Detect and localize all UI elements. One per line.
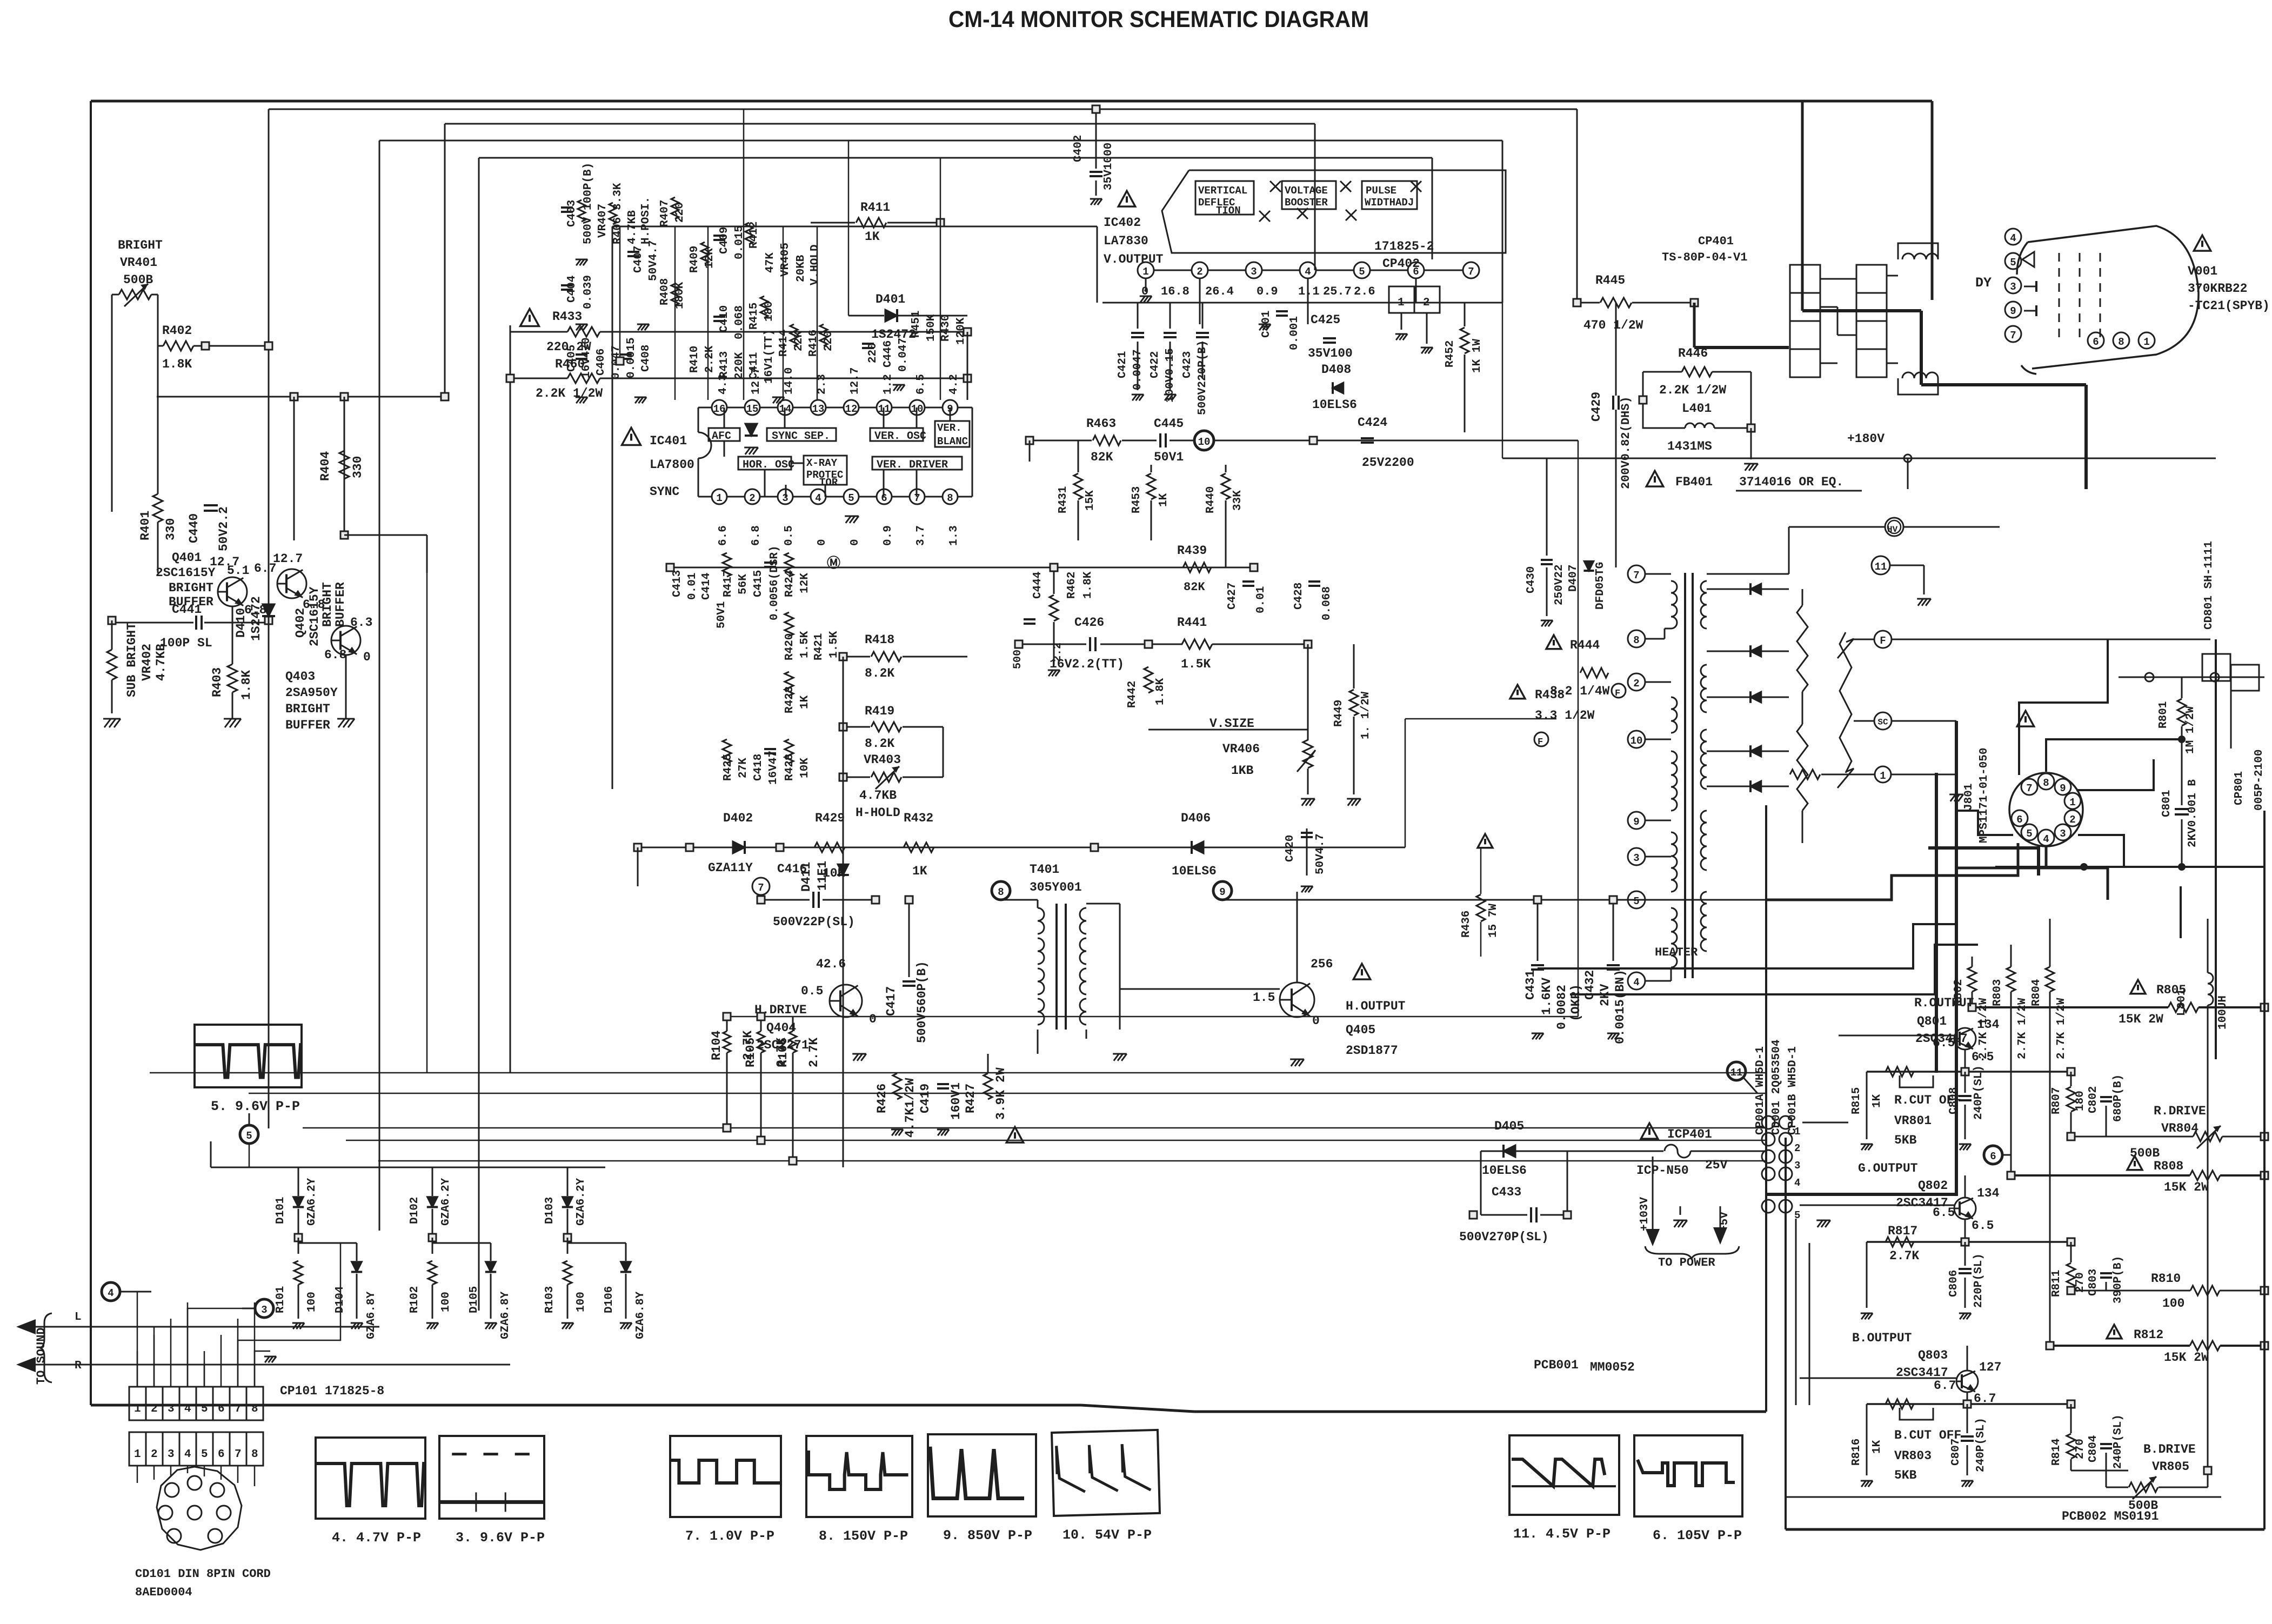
svg-text:8: 8 bbox=[251, 1403, 258, 1415]
svg-text:VR403: VR403 bbox=[864, 753, 901, 767]
svg-text:R103: R103 bbox=[544, 1286, 556, 1313]
svg-text:7: 7 bbox=[1633, 570, 1639, 582]
svg-text:C427: C427 bbox=[1226, 583, 1239, 610]
svg-text:R444: R444 bbox=[1570, 638, 1600, 652]
svg-text:15K 2W: 15K 2W bbox=[2119, 1012, 2163, 1026]
svg-text:0.01: 0.01 bbox=[686, 573, 699, 600]
svg-text:VR406: VR406 bbox=[1222, 742, 1260, 756]
svg-text:127: 127 bbox=[1979, 1360, 2001, 1374]
svg-text:1: 1 bbox=[2069, 797, 2075, 808]
svg-text:T401: T401 bbox=[1030, 863, 1059, 877]
svg-text:1: 1 bbox=[2143, 336, 2149, 348]
svg-text:VR402: VR402 bbox=[140, 644, 154, 681]
svg-text:1S2472: 1S2472 bbox=[871, 328, 916, 342]
svg-text:ICP401: ICP401 bbox=[1667, 1127, 1712, 1141]
svg-text:R413: R413 bbox=[718, 351, 731, 378]
svg-text:1.8K: 1.8K bbox=[162, 357, 192, 371]
svg-text:C430: C430 bbox=[1525, 566, 1538, 593]
svg-text:-TC21(SPYB): -TC21(SPYB) bbox=[2188, 299, 2270, 313]
svg-text:Q405: Q405 bbox=[1346, 1023, 1375, 1037]
svg-text:Q403: Q403 bbox=[285, 670, 315, 684]
svg-text:R104: R104 bbox=[710, 1031, 724, 1060]
svg-text:VR405: VR405 bbox=[779, 243, 792, 277]
svg-text:H-HOLD: H-HOLD bbox=[856, 806, 900, 820]
svg-text:220P(SL): 220P(SL) bbox=[1973, 1253, 1985, 1308]
svg-text:0.01: 0.01 bbox=[1255, 586, 1267, 613]
svg-text:1.3: 1.3 bbox=[948, 525, 960, 546]
svg-text:2: 2 bbox=[2069, 814, 2075, 826]
svg-text:1.5K: 1.5K bbox=[1181, 657, 1211, 671]
svg-text:0.001: 0.001 bbox=[1288, 316, 1301, 350]
svg-text:0.047: 0.047 bbox=[897, 338, 910, 372]
svg-text:20KB: 20KB bbox=[795, 255, 807, 282]
svg-text:D102: D102 bbox=[409, 1197, 421, 1224]
svg-text:R808: R808 bbox=[2154, 1159, 2183, 1173]
svg-text:200V0.82(DHS): 200V0.82(DHS) bbox=[1619, 396, 1633, 489]
svg-text:1.8K: 1.8K bbox=[239, 670, 253, 700]
svg-text:TION: TION bbox=[1216, 205, 1241, 217]
svg-text:R433: R433 bbox=[552, 310, 582, 324]
svg-text:C406: C406 bbox=[595, 349, 607, 376]
svg-text:R414: R414 bbox=[778, 330, 790, 357]
svg-text:3.3 1/2W: 3.3 1/2W bbox=[1535, 709, 1595, 723]
svg-text:25.7: 25.7 bbox=[1323, 285, 1352, 298]
svg-text:G.OUTPUT: G.OUTPUT bbox=[1858, 1161, 1918, 1175]
svg-text:220: 220 bbox=[823, 331, 835, 351]
svg-text:1.5: 1.5 bbox=[1253, 991, 1275, 1005]
svg-text:1M 1/2W: 1M 1/2W bbox=[2184, 706, 2197, 754]
svg-text:R436: R436 bbox=[1460, 911, 1473, 938]
svg-text:6.5: 6.5 bbox=[915, 374, 927, 395]
svg-text:9: 9 bbox=[2060, 783, 2066, 794]
svg-text:390P(B): 390P(B) bbox=[2112, 1256, 2124, 1304]
svg-text:4: 4 bbox=[184, 1448, 191, 1461]
svg-text:R445: R445 bbox=[1595, 273, 1625, 288]
svg-text:1K: 1K bbox=[1871, 1440, 1883, 1454]
svg-text:12.7: 12.7 bbox=[849, 367, 861, 395]
svg-text:R415: R415 bbox=[748, 303, 760, 330]
svg-text:134: 134 bbox=[1977, 1186, 2000, 1200]
svg-text:11: 11 bbox=[1730, 1067, 1743, 1079]
svg-text:L401: L401 bbox=[1682, 402, 1712, 416]
svg-text:R402: R402 bbox=[162, 324, 192, 338]
svg-text:C421: C421 bbox=[1117, 351, 1129, 378]
svg-text:VR407: VR407 bbox=[597, 204, 609, 238]
svg-text:GZA11Y: GZA11Y bbox=[708, 861, 753, 875]
svg-text:F: F bbox=[1615, 689, 1620, 699]
svg-text:C804: C804 bbox=[2087, 1435, 2100, 1462]
svg-text:R411: R411 bbox=[860, 201, 890, 215]
svg-text:7: 7 bbox=[1468, 266, 1474, 278]
svg-text:C801: C801 bbox=[2161, 790, 2173, 817]
svg-text:82K: 82K bbox=[1091, 450, 1113, 464]
svg-text:H.OUTPUT: H.OUTPUT bbox=[1346, 999, 1406, 1013]
svg-text:10: 10 bbox=[1631, 735, 1643, 747]
svg-text:171825-2: 171825-2 bbox=[1374, 239, 1434, 253]
svg-text:22K: 22K bbox=[793, 331, 805, 351]
svg-text:10K: 10K bbox=[823, 866, 845, 880]
svg-text:SYNC: SYNC bbox=[650, 485, 679, 499]
svg-text:35V100: 35V100 bbox=[1308, 346, 1353, 360]
svg-text:240P(SL): 240P(SL) bbox=[1975, 1418, 1987, 1472]
svg-text:2.2K 1/2W: 2.2K 1/2W bbox=[536, 386, 603, 400]
svg-text:7: 7 bbox=[758, 882, 764, 894]
svg-text:D408: D408 bbox=[1321, 363, 1351, 377]
svg-text:8: 8 bbox=[2118, 336, 2124, 348]
svg-text:8: 8 bbox=[998, 886, 1004, 898]
svg-text:+103V: +103V bbox=[1639, 1197, 1651, 1231]
svg-text:8: 8 bbox=[251, 1448, 258, 1461]
svg-text:R463: R463 bbox=[1086, 417, 1116, 431]
svg-text:R101: R101 bbox=[275, 1286, 287, 1313]
svg-text:VR805: VR805 bbox=[2152, 1460, 2189, 1474]
svg-text:V.SIZE: V.SIZE bbox=[1209, 717, 1254, 731]
svg-text:220: 220 bbox=[674, 202, 686, 223]
svg-text:50V2.2: 50V2.2 bbox=[217, 506, 231, 551]
svg-text:R106: R106 bbox=[776, 1038, 790, 1067]
svg-text:4: 4 bbox=[184, 1403, 191, 1415]
svg-text:CP801: CP801 bbox=[2233, 771, 2246, 805]
svg-text:5KB: 5KB bbox=[1894, 1468, 1917, 1482]
svg-text:270: 270 bbox=[2074, 1439, 2087, 1459]
svg-text:R449: R449 bbox=[1333, 700, 1345, 727]
svg-text:IC401: IC401 bbox=[650, 434, 687, 448]
svg-text:1.5K: 1.5K bbox=[799, 631, 811, 658]
svg-text:CP001B WH5D-1: CP001B WH5D-1 bbox=[1787, 1046, 1799, 1135]
svg-text:ICP-N50: ICP-N50 bbox=[1636, 1164, 1689, 1178]
svg-text:LA7800: LA7800 bbox=[650, 458, 694, 472]
svg-text:6.7: 6.7 bbox=[254, 562, 276, 576]
svg-text:R404: R404 bbox=[318, 451, 332, 481]
svg-text:R438: R438 bbox=[1535, 688, 1565, 702]
svg-text:10ELS6: 10ELS6 bbox=[1172, 864, 1217, 878]
svg-text:10: 10 bbox=[1198, 436, 1211, 448]
svg-text:15K: 15K bbox=[1084, 490, 1097, 511]
svg-text:1K 1W: 1K 1W bbox=[1471, 339, 1484, 373]
svg-text:150K: 150K bbox=[925, 314, 938, 342]
svg-text:L: L bbox=[75, 1311, 82, 1324]
svg-text:CP402: CP402 bbox=[1382, 257, 1420, 271]
svg-text:4: 4 bbox=[2043, 833, 2049, 845]
svg-text:4.2: 4.2 bbox=[948, 374, 960, 395]
svg-text:D105: D105 bbox=[468, 1286, 480, 1313]
svg-text:BRIGHT: BRIGHT bbox=[118, 238, 163, 252]
svg-text:SYNC SEP.: SYNC SEP. bbox=[772, 430, 830, 443]
svg-text:270: 270 bbox=[2074, 1272, 2087, 1293]
svg-text:8: 8 bbox=[947, 492, 953, 504]
svg-text:2SA950Y: 2SA950Y bbox=[285, 686, 338, 700]
svg-text:2SC1615Y: 2SC1615Y bbox=[308, 586, 322, 646]
svg-text:8: 8 bbox=[2043, 777, 2049, 789]
svg-text:CP401: CP401 bbox=[1698, 235, 1734, 248]
svg-text:4. 4.7V P-P: 4. 4.7V P-P bbox=[332, 1530, 421, 1546]
svg-text:8.2K: 8.2K bbox=[865, 737, 894, 751]
svg-text:42.6: 42.6 bbox=[816, 957, 846, 971]
svg-text:VER. OSC: VER. OSC bbox=[874, 430, 926, 443]
svg-text:5KB: 5KB bbox=[1894, 1133, 1917, 1147]
svg-text:15K 2W: 15K 2W bbox=[2164, 1180, 2209, 1194]
svg-text:R424: R424 bbox=[784, 570, 796, 597]
svg-text:VER.: VER. bbox=[937, 422, 962, 434]
svg-text:7: 7 bbox=[2010, 330, 2016, 342]
svg-text:GZA6.2Y: GZA6.2Y bbox=[306, 1178, 318, 1226]
svg-text:47K: 47K bbox=[764, 252, 777, 273]
svg-text:R102: R102 bbox=[409, 1286, 421, 1313]
svg-text:100: 100 bbox=[2162, 1296, 2184, 1311]
svg-text:0.5: 0.5 bbox=[801, 984, 823, 998]
svg-text:1: 1 bbox=[716, 492, 722, 504]
svg-text:TS-80P-04-V1: TS-80P-04-V1 bbox=[1662, 251, 1747, 264]
svg-text:R812: R812 bbox=[2134, 1328, 2163, 1342]
svg-text:5: 5 bbox=[848, 492, 854, 504]
svg-text:3: 3 bbox=[261, 1304, 267, 1316]
svg-text:BRIGHT: BRIGHT bbox=[285, 702, 330, 716]
svg-text:TO SOUND: TO SOUND bbox=[35, 1327, 48, 1385]
svg-text:50V1: 50V1 bbox=[1154, 450, 1184, 464]
svg-text:C803: C803 bbox=[2087, 1269, 2100, 1296]
svg-text:HOR. OSC: HOR. OSC bbox=[743, 459, 794, 471]
svg-text:R815: R815 bbox=[1850, 1087, 1863, 1114]
svg-text:BUFFER: BUFFER bbox=[169, 595, 213, 609]
svg-text:X-RAY: X-RAY bbox=[806, 457, 838, 469]
svg-text:Q404: Q404 bbox=[766, 1021, 796, 1035]
svg-text:6: 6 bbox=[2016, 814, 2022, 826]
svg-text:VOLTAGE: VOLTAGE bbox=[1285, 185, 1328, 197]
svg-text:C808: C808 bbox=[1948, 1087, 1960, 1114]
svg-text:1.1: 1.1 bbox=[1298, 285, 1320, 298]
svg-text:CM-14 MONITOR SCHEMATIC DIAGRA: CM-14 MONITOR SCHEMATIC DIAGRAM bbox=[948, 6, 1369, 32]
svg-text:R805: R805 bbox=[2156, 983, 2186, 997]
svg-text:IC402: IC402 bbox=[1104, 216, 1141, 230]
svg-text:6.3: 6.3 bbox=[350, 616, 372, 630]
svg-text:LA7830: LA7830 bbox=[1104, 234, 1148, 248]
svg-text:Q802: Q802 bbox=[1918, 1179, 1948, 1193]
svg-text:0: 0 bbox=[363, 650, 371, 664]
svg-text:370KRB22: 370KRB22 bbox=[2188, 282, 2247, 296]
svg-text:V.HOLD: V.HOLD bbox=[809, 244, 821, 285]
svg-text:8AED0004: 8AED0004 bbox=[135, 1586, 192, 1599]
svg-text:180: 180 bbox=[763, 301, 776, 322]
svg-text:0.0082: 0.0082 bbox=[1555, 985, 1569, 1030]
svg-text:4: 4 bbox=[815, 492, 821, 504]
svg-text:V.OUTPUT: V.OUTPUT bbox=[1104, 252, 1164, 266]
svg-text:680P(B): 680P(B) bbox=[2112, 1074, 2124, 1122]
svg-text:C431: C431 bbox=[1523, 970, 1538, 1000]
svg-text:R418: R418 bbox=[865, 633, 894, 647]
svg-text:3: 3 bbox=[1251, 266, 1257, 278]
svg-text:470 1/2W: 470 1/2W bbox=[1583, 318, 1643, 332]
svg-text:12: 12 bbox=[845, 403, 858, 415]
svg-text:Q402: Q402 bbox=[293, 608, 308, 638]
svg-text:FB401: FB401 bbox=[1675, 475, 1713, 489]
svg-text:6.5: 6.5 bbox=[1933, 1206, 1955, 1220]
svg-text:C444: C444 bbox=[1032, 572, 1044, 599]
svg-text:6. 105V P-P: 6. 105V P-P bbox=[1653, 1528, 1742, 1543]
svg-text:R814: R814 bbox=[2050, 1439, 2063, 1466]
svg-text:C411: C411 bbox=[748, 352, 760, 379]
svg-text:H.POSI.: H.POSI. bbox=[640, 197, 652, 244]
svg-text:C410: C410 bbox=[718, 305, 731, 332]
svg-text:500: 500 bbox=[1012, 650, 1024, 669]
svg-text:5: 5 bbox=[2026, 828, 2032, 840]
svg-text:SUB BRIGHT: SUB BRIGHT bbox=[125, 623, 139, 697]
svg-text:C446: C446 bbox=[882, 340, 894, 367]
svg-text:500V560P(B): 500V560P(B) bbox=[915, 961, 929, 1043]
svg-text:6.8: 6.8 bbox=[324, 648, 346, 662]
svg-text:56K: 56K bbox=[737, 574, 750, 594]
svg-text:6.8: 6.8 bbox=[750, 525, 763, 546]
svg-text:R.OUTPUT: R.OUTPUT bbox=[1914, 996, 1974, 1010]
svg-text:R452: R452 bbox=[1444, 340, 1456, 367]
svg-text:2.7K: 2.7K bbox=[807, 1038, 821, 1067]
svg-text:240P(SL): 240P(SL) bbox=[1973, 1065, 1985, 1120]
svg-text:C806: C806 bbox=[1948, 1270, 1960, 1297]
svg-text:J801: J801 bbox=[1963, 784, 1975, 811]
svg-text:100: 100 bbox=[440, 1292, 452, 1312]
svg-text:330: 330 bbox=[164, 518, 178, 540]
svg-text:15: 15 bbox=[746, 403, 759, 415]
svg-text:6.6: 6.6 bbox=[717, 525, 730, 546]
svg-text:C425: C425 bbox=[1311, 313, 1340, 327]
svg-text:VR401: VR401 bbox=[120, 256, 157, 270]
svg-text:5: 5 bbox=[2010, 257, 2016, 269]
svg-text:11. 4.5V P-P: 11. 4.5V P-P bbox=[1513, 1526, 1611, 1542]
svg-text:0: 0 bbox=[869, 1012, 877, 1026]
svg-text:3: 3 bbox=[1794, 1160, 1800, 1172]
svg-text:R439: R439 bbox=[1177, 544, 1207, 558]
svg-text:8.2K: 8.2K bbox=[865, 666, 894, 680]
svg-text:C424: C424 bbox=[1358, 416, 1387, 430]
svg-text:R432: R432 bbox=[904, 811, 933, 825]
svg-text:2: 2 bbox=[151, 1448, 158, 1461]
svg-text:1K: 1K bbox=[1158, 493, 1170, 507]
svg-text:GZA6.8Y: GZA6.8Y bbox=[365, 1291, 378, 1339]
svg-text:F: F bbox=[1880, 635, 1886, 647]
svg-text:1: 1 bbox=[134, 1448, 141, 1461]
svg-text:2: 2 bbox=[1197, 266, 1202, 278]
svg-text:C418: C418 bbox=[752, 754, 765, 781]
svg-text:0.9: 0.9 bbox=[1257, 285, 1278, 298]
svg-text:2: 2 bbox=[1633, 678, 1639, 690]
svg-text:GZA6.2Y: GZA6.2Y bbox=[575, 1178, 587, 1226]
svg-text:0.0056(DSR): 0.0056(DSR) bbox=[769, 545, 781, 620]
svg-text:C417: C417 bbox=[884, 986, 898, 1016]
svg-text:R403: R403 bbox=[210, 667, 224, 697]
svg-text:HV: HV bbox=[1887, 525, 1898, 534]
svg-text:PCB002 MS0191: PCB002 MS0191 bbox=[2062, 1509, 2159, 1523]
svg-text:R816: R816 bbox=[1850, 1439, 1863, 1466]
svg-text:250V22: 250V22 bbox=[1553, 564, 1566, 605]
svg-text:BUFFER: BUFFER bbox=[333, 582, 348, 627]
svg-text:100: 100 bbox=[575, 1292, 587, 1312]
svg-text:R801: R801 bbox=[2157, 701, 2170, 729]
svg-text:+180V: +180V bbox=[1847, 432, 1885, 446]
svg-text:VR803: VR803 bbox=[1894, 1449, 1932, 1463]
svg-text:D103: D103 bbox=[544, 1197, 556, 1224]
svg-text:1.6KV: 1.6KV bbox=[1540, 978, 1554, 1015]
svg-text:C423: C423 bbox=[1181, 351, 1194, 378]
svg-text:7: 7 bbox=[235, 1403, 242, 1415]
svg-text:005P-2100: 005P-2100 bbox=[2253, 750, 2266, 811]
svg-text:305Y001: 305Y001 bbox=[1030, 880, 1082, 894]
svg-text:1K: 1K bbox=[865, 230, 880, 244]
svg-text:HEATER: HEATER bbox=[1655, 946, 1698, 959]
svg-text:R811: R811 bbox=[2050, 1270, 2063, 1297]
svg-text:12.7: 12.7 bbox=[273, 552, 303, 566]
svg-text:R462: R462 bbox=[1066, 572, 1078, 599]
svg-text:3: 3 bbox=[2010, 281, 2016, 293]
svg-text:4: 4 bbox=[1305, 266, 1311, 278]
svg-text:6: 6 bbox=[218, 1403, 225, 1415]
svg-text:0: 0 bbox=[849, 539, 861, 546]
svg-text:1K: 1K bbox=[799, 695, 811, 709]
svg-text:R408: R408 bbox=[659, 278, 671, 305]
svg-text:11: 11 bbox=[1875, 561, 1887, 573]
svg-text:4.7KB: 4.7KB bbox=[154, 644, 168, 681]
svg-text:1S2472: 1S2472 bbox=[249, 596, 263, 641]
svg-text:500V 100P(B): 500V 100P(B) bbox=[582, 163, 594, 244]
svg-text:R453: R453 bbox=[1131, 486, 1143, 513]
svg-text:1: 1 bbox=[134, 1403, 141, 1415]
svg-text:Q801: Q801 bbox=[1917, 1014, 1947, 1028]
svg-text:7: 7 bbox=[2026, 783, 2032, 794]
svg-text:220: 220 bbox=[867, 343, 879, 363]
svg-text:C408: C408 bbox=[640, 345, 652, 372]
svg-text:R420: R420 bbox=[784, 633, 796, 660]
svg-text:100: 100 bbox=[306, 1292, 318, 1312]
svg-text:CD101 DIN 8PIN CORD: CD101 DIN 8PIN CORD bbox=[135, 1567, 271, 1581]
svg-text:R.DRIVE: R.DRIVE bbox=[2154, 1104, 2206, 1118]
svg-text:R431: R431 bbox=[1057, 486, 1070, 513]
svg-text:1.8K: 1.8K bbox=[1082, 571, 1094, 599]
svg-text:D401: D401 bbox=[876, 292, 905, 306]
svg-text:D406: D406 bbox=[1181, 811, 1211, 825]
svg-text:2: 2 bbox=[749, 492, 755, 504]
svg-text:1.8K: 1.8K bbox=[1154, 678, 1167, 705]
svg-text:R427: R427 bbox=[964, 1084, 978, 1113]
svg-text:1: 1 bbox=[1794, 1126, 1800, 1138]
svg-text:B.OUTPUT: B.OUTPUT bbox=[1852, 1331, 1912, 1345]
svg-text:8: 8 bbox=[1633, 634, 1639, 646]
svg-text:GZA6.2Y: GZA6.2Y bbox=[440, 1178, 452, 1226]
svg-text:6.5: 6.5 bbox=[1972, 1219, 1994, 1233]
svg-text:5: 5 bbox=[201, 1403, 208, 1415]
svg-text:C414: C414 bbox=[700, 573, 713, 600]
svg-text:8. 150V P-P: 8. 150V P-P bbox=[819, 1528, 908, 1544]
svg-text:120K: 120K bbox=[955, 317, 967, 345]
svg-text:C428: C428 bbox=[1293, 583, 1305, 610]
svg-text:C415: C415 bbox=[752, 570, 765, 597]
svg-text:2.2K: 2.2K bbox=[704, 345, 716, 373]
svg-text:2.7K: 2.7K bbox=[1889, 1249, 1919, 1263]
svg-text:16V47: 16V47 bbox=[767, 751, 780, 785]
svg-text:VR804: VR804 bbox=[2161, 1121, 2199, 1135]
svg-text:R416: R416 bbox=[807, 330, 820, 357]
svg-text:3: 3 bbox=[168, 1448, 175, 1461]
svg-text:10ELS6: 10ELS6 bbox=[1482, 1164, 1527, 1178]
svg-text:C433: C433 bbox=[1492, 1185, 1521, 1199]
svg-text:D106: D106 bbox=[603, 1286, 616, 1313]
svg-text:1: 1 bbox=[1142, 266, 1148, 278]
svg-text:BRIGHT: BRIGHT bbox=[169, 581, 213, 595]
svg-text:VERTICAL: VERTICAL bbox=[1198, 185, 1247, 197]
svg-text:3: 3 bbox=[2060, 828, 2066, 840]
svg-text:R105: R105 bbox=[744, 1038, 758, 1067]
svg-text:TO POWER: TO POWER bbox=[1658, 1256, 1715, 1269]
svg-text:10ELS6: 10ELS6 bbox=[1312, 398, 1357, 412]
svg-text:2.3: 2.3 bbox=[816, 374, 828, 395]
svg-text:1.2: 1.2 bbox=[882, 374, 894, 395]
